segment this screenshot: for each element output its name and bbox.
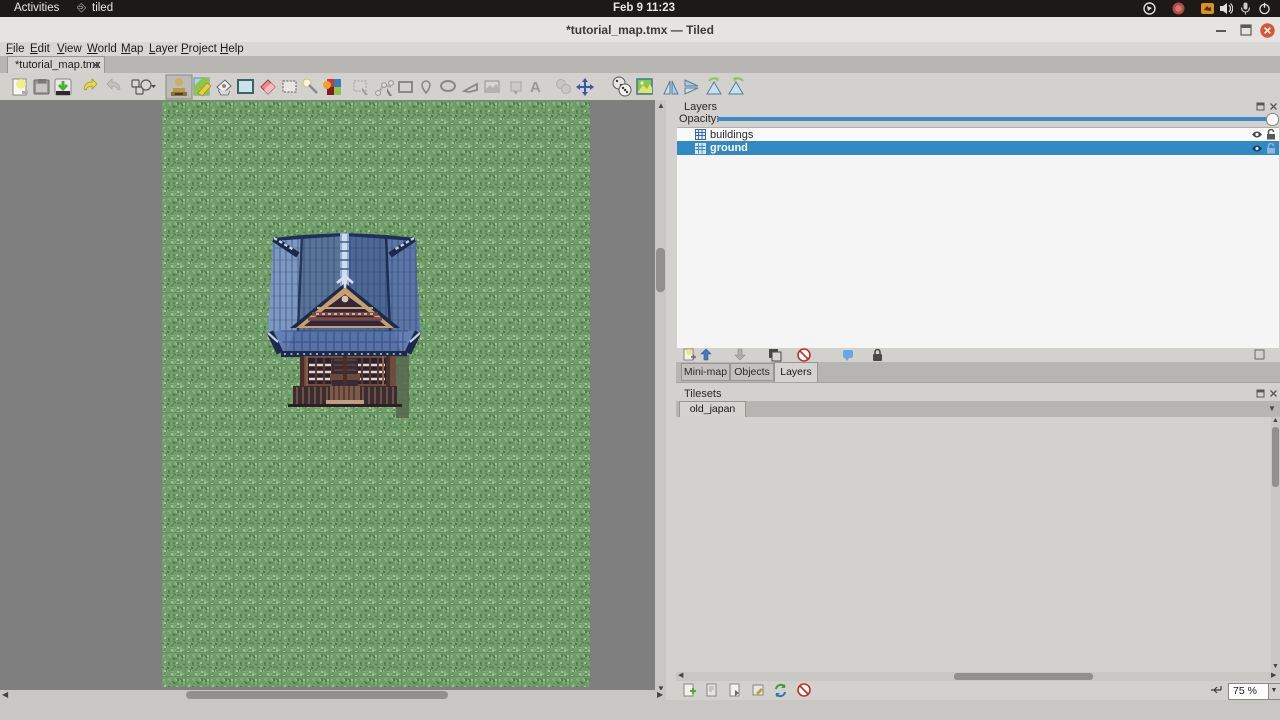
svg-text:A: A	[530, 79, 541, 96]
